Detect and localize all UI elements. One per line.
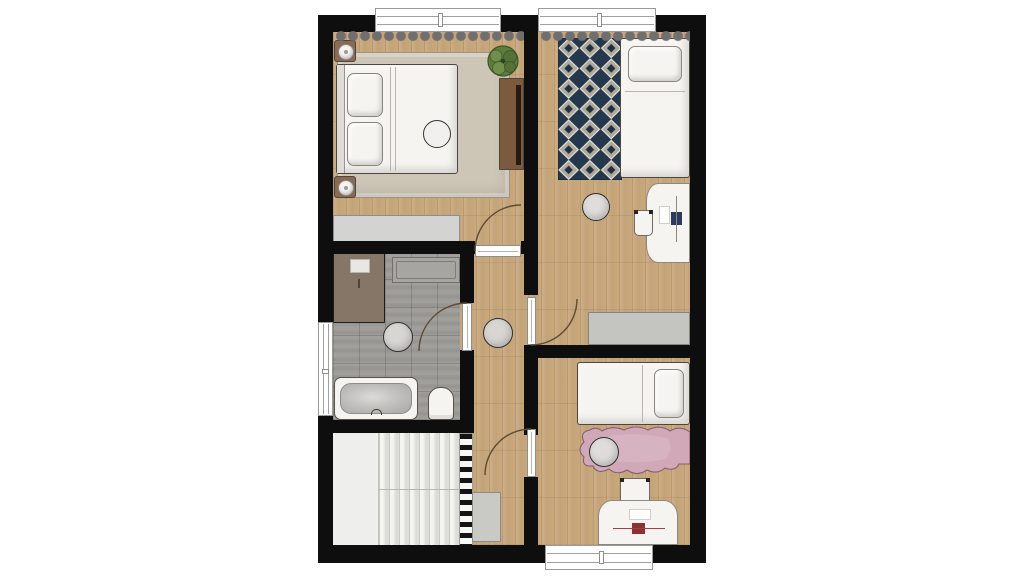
duvet-crease bbox=[395, 67, 396, 171]
notebook bbox=[659, 206, 670, 224]
wall-left bbox=[318, 15, 333, 563]
shower-drain bbox=[358, 279, 360, 288]
master-double-bed bbox=[336, 64, 458, 174]
wardrobe-top-right bbox=[588, 312, 690, 345]
bathtub bbox=[334, 377, 418, 420]
bath-round-rug bbox=[383, 322, 413, 352]
door-master-bedroom bbox=[475, 245, 521, 257]
tv-icon bbox=[516, 85, 521, 165]
wall-bathroom-right-a bbox=[460, 241, 474, 303]
wall-hall-right-3 bbox=[524, 477, 538, 547]
round-pouf bbox=[589, 437, 619, 467]
curtain-top-right bbox=[540, 31, 690, 42]
desk-bottom-right bbox=[598, 500, 678, 545]
window-top-master bbox=[375, 8, 501, 32]
curtain-master bbox=[335, 31, 524, 42]
screenshot-canvas bbox=[0, 0, 1024, 576]
desk-chair-top-right bbox=[634, 210, 653, 236]
wall-hall-right-1 bbox=[524, 247, 538, 295]
door-bottom-right-bedroom bbox=[527, 429, 536, 477]
stair-railing bbox=[459, 433, 473, 547]
table-lamp-icon bbox=[338, 44, 354, 60]
master-nightstand-bottom bbox=[334, 176, 356, 198]
notebook bbox=[629, 509, 651, 520]
bathroom-counter bbox=[392, 257, 460, 283]
stairs-lower-flight bbox=[378, 489, 460, 546]
potted-plant-icon bbox=[485, 43, 521, 79]
window-top-right-bedroom bbox=[538, 8, 656, 32]
pillow bbox=[654, 369, 684, 418]
wall-master-bottom bbox=[318, 241, 475, 254]
tv-sideboard bbox=[499, 78, 524, 170]
door-top-right-bedroom bbox=[527, 297, 536, 345]
pillow bbox=[347, 122, 383, 166]
window-left-bathroom bbox=[318, 322, 333, 416]
master-nightstand-top bbox=[334, 40, 356, 62]
wall-right bbox=[690, 15, 706, 563]
shower bbox=[333, 253, 385, 323]
faucet-icon bbox=[371, 409, 382, 415]
hallway-cabinet bbox=[472, 492, 501, 542]
window-bottom-bedroom bbox=[545, 545, 653, 570]
wall-bathroom-bottom bbox=[318, 420, 474, 433]
stairs-upper-flight bbox=[378, 433, 460, 489]
floor-plan bbox=[318, 8, 706, 570]
wall-between-top-bedrooms bbox=[524, 15, 538, 254]
desk-rail bbox=[613, 528, 665, 529]
pillow bbox=[628, 46, 682, 82]
duvet-crease bbox=[625, 91, 685, 92]
round-pouf bbox=[582, 193, 610, 221]
shower-fixture-icon bbox=[350, 259, 370, 273]
headboard bbox=[337, 65, 345, 173]
wall-hall-right-2 bbox=[524, 345, 538, 435]
table-lamp-icon bbox=[338, 180, 354, 196]
toilet bbox=[428, 387, 454, 420]
wall-master-bottom-stub bbox=[521, 241, 538, 254]
diamond-pattern-rug bbox=[558, 38, 622, 180]
duvet-crease bbox=[390, 67, 391, 171]
desk-rail bbox=[676, 196, 677, 242]
pillow bbox=[347, 73, 383, 117]
wall-between-right-bedrooms bbox=[524, 345, 690, 358]
hallway-round-rug bbox=[483, 318, 513, 348]
single-bed-top-right bbox=[620, 38, 690, 178]
duvet-crease bbox=[642, 365, 643, 422]
door-bathroom bbox=[462, 303, 472, 351]
bed-round-decor bbox=[423, 120, 451, 148]
single-bed-bottom-right bbox=[577, 362, 690, 425]
